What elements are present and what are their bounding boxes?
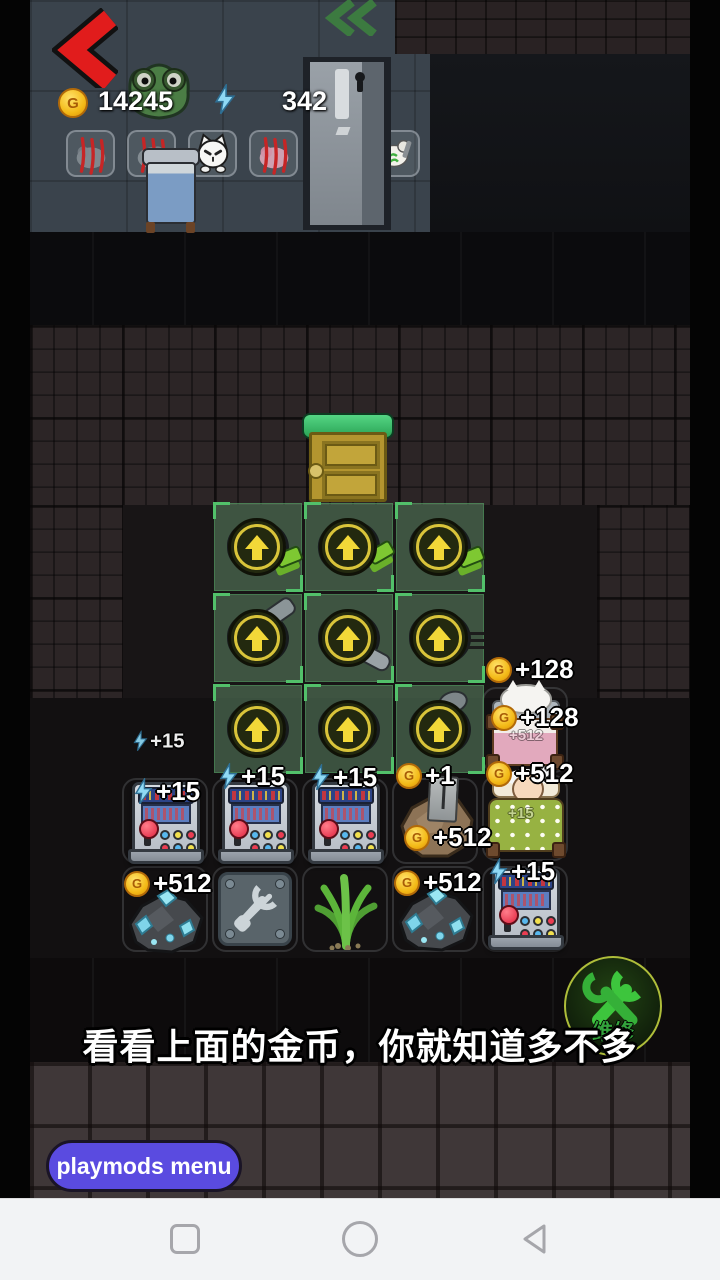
door-panel-side — [362, 62, 384, 225]
lightning-icon — [214, 84, 236, 115]
upgrade-tile[interactable] — [305, 685, 393, 773]
android-navbar — [0, 1198, 720, 1280]
upgrade-grid — [214, 503, 484, 773]
gain-label-energy-faint: +15 — [508, 804, 534, 822]
upgrade-tile[interactable] — [396, 503, 484, 591]
door-panel — [322, 441, 380, 469]
coin-icon: G — [486, 657, 512, 683]
nav-home-button[interactable] — [342, 1221, 378, 1257]
arcade-machine[interactable] — [218, 782, 294, 864]
upgrade-arrow-icon — [228, 518, 286, 576]
pet-slot-1[interactable] — [66, 130, 115, 177]
dark-gap-band — [0, 232, 720, 325]
back-button[interactable] — [52, 8, 118, 88]
claw-marks-icon — [70, 133, 112, 175]
gain-label-gold: G +512 — [404, 822, 492, 853]
green-chevrons-icon — [322, 0, 386, 36]
subtitle-text: 看看上面的金币，你就知道多不多 — [0, 1018, 720, 1070]
upgrade-tile[interactable] — [396, 594, 484, 682]
upgrade-tile[interactable] — [214, 594, 302, 682]
nav-back-button[interactable] — [518, 1222, 552, 1256]
upgrade-arrow-icon — [228, 609, 286, 667]
door-panel — [322, 471, 380, 499]
upgrade-tile[interactable] — [305, 594, 393, 682]
gain-label-gold: G +512 — [394, 867, 482, 898]
coin-icon: G — [486, 761, 512, 787]
playmods-menu-button[interactable]: playmods menu — [46, 1140, 242, 1192]
lightning-icon — [219, 763, 238, 790]
upgrade-arrow-icon — [410, 609, 468, 667]
lightning-icon — [489, 858, 508, 885]
lightning-icon — [134, 778, 153, 805]
playmods-menu-label: playmods menu — [56, 1153, 231, 1180]
claw-marks-icon — [253, 133, 295, 175]
coin-letter: G — [67, 95, 79, 112]
lightning-icon — [133, 731, 148, 752]
lightning-icon — [311, 764, 330, 791]
energy-counter: 342 — [282, 86, 327, 117]
gain-label-gold: G +1 — [396, 760, 455, 791]
top-right-dark-area — [430, 54, 690, 232]
bed-foot — [186, 222, 195, 233]
upgrade-tile[interactable] — [214, 503, 302, 591]
upgrade-arrow-icon — [228, 700, 286, 758]
room-wall-right — [597, 505, 690, 698]
gain-label-gold: G +512 — [486, 758, 574, 789]
upgrade-arrow-icon — [410, 700, 468, 758]
gain-label-energy: +15 — [219, 761, 285, 792]
tools-tile[interactable] — [218, 872, 292, 946]
gain-label-gold: G +512 — [124, 868, 212, 899]
upgrade-arrow-icon — [410, 518, 468, 576]
gain-label-gold: G +128 — [486, 654, 574, 685]
gold-counter: 14245 — [98, 86, 173, 117]
gain-label-energy: +15 — [133, 729, 185, 753]
coin-icon: G — [396, 763, 422, 789]
gray-door[interactable] — [303, 57, 391, 230]
coin-icon: G — [404, 825, 430, 851]
top-brick-band — [395, 0, 690, 54]
room-wall-left — [30, 505, 123, 698]
upgrade-arrow-icon — [319, 518, 377, 576]
door-knob-icon — [308, 463, 324, 479]
wrench-screwdriver-icon — [228, 882, 282, 936]
fern-plant[interactable] — [308, 866, 384, 950]
bed-blanket — [146, 162, 196, 224]
pet-slot-4[interactable] — [249, 130, 298, 177]
exit-door[interactable] — [309, 432, 387, 502]
upgrade-arrow-icon — [319, 700, 377, 758]
door-knob-stem — [357, 80, 363, 92]
game-screen: G 14245 342 — [0, 0, 720, 1280]
gain-label-energy: +15 — [134, 776, 200, 807]
door-window-slat — [335, 69, 349, 119]
gain-label-gold-faint: +512 — [509, 726, 543, 744]
bed-foot — [146, 222, 155, 233]
coin-icon: G — [394, 870, 420, 896]
arcade-machine[interactable] — [308, 782, 384, 864]
upgrade-tile[interactable] — [214, 685, 302, 773]
upgrade-arrow-icon — [319, 609, 377, 667]
nav-recents-button[interactable] — [170, 1224, 200, 1254]
gain-label-energy: +15 — [489, 856, 555, 887]
coin-icon: G — [124, 871, 150, 897]
gain-label-energy: +15 — [311, 762, 377, 793]
coin-icon: G — [58, 88, 88, 118]
upgrade-tile[interactable] — [305, 503, 393, 591]
